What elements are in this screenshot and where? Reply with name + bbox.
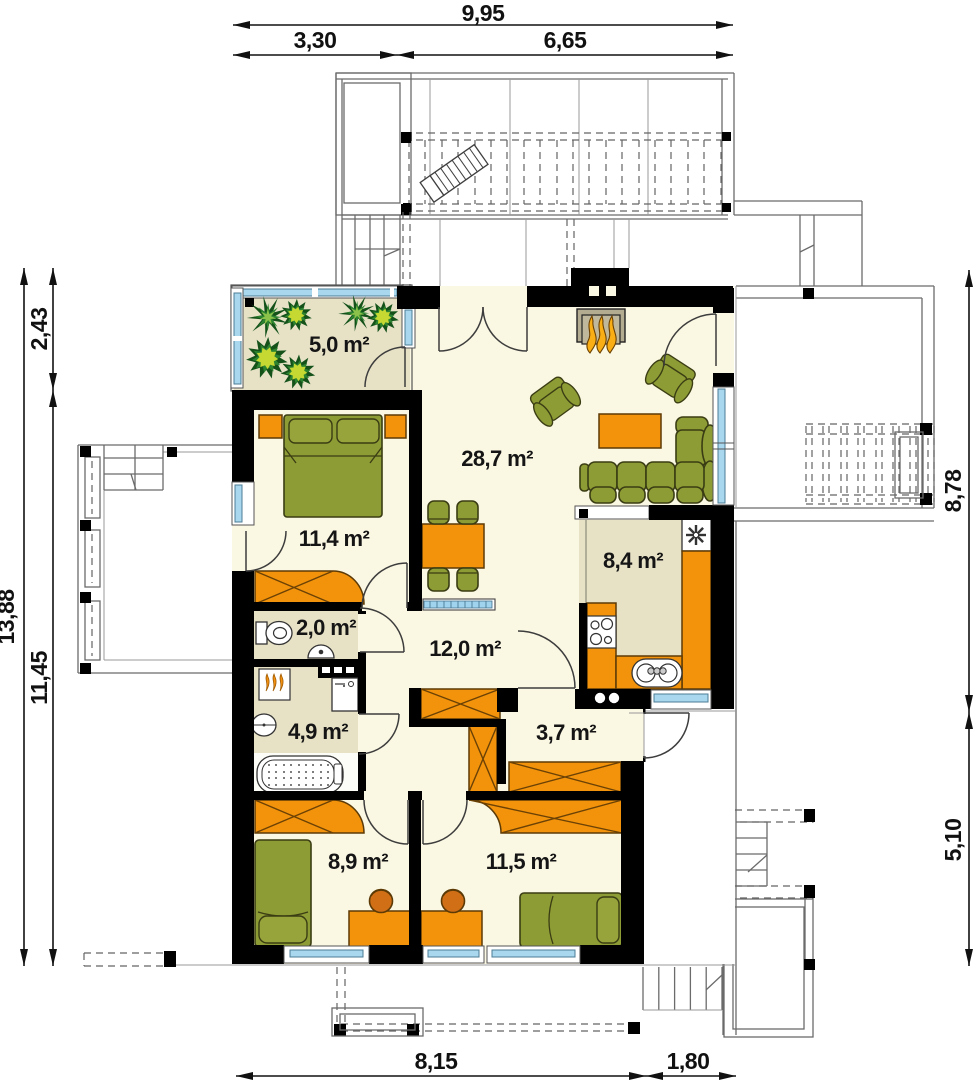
- svg-text:5,10: 5,10: [940, 819, 966, 862]
- svg-text:28,7 m²: 28,7 m²: [461, 446, 533, 471]
- svg-text:3,7 m²: 3,7 m²: [536, 720, 596, 745]
- svg-text:8,9 m²: 8,9 m²: [328, 849, 388, 874]
- svg-text:5,0 m²: 5,0 m²: [309, 332, 369, 357]
- svg-text:8,78: 8,78: [940, 469, 966, 512]
- svg-text:11,5 m²: 11,5 m²: [486, 849, 557, 874]
- svg-text:8,4 m²: 8,4 m²: [603, 548, 663, 573]
- svg-text:12,0 m²: 12,0 m²: [429, 636, 501, 661]
- svg-text:3,30: 3,30: [294, 27, 337, 53]
- svg-text:13,88: 13,88: [0, 589, 19, 645]
- svg-text:9,95: 9,95: [462, 0, 505, 26]
- svg-text:11,45: 11,45: [26, 650, 52, 704]
- svg-text:2,43: 2,43: [26, 308, 52, 351]
- svg-text:11,4 m²: 11,4 m²: [299, 526, 370, 551]
- svg-text:8,15: 8,15: [415, 1048, 458, 1074]
- svg-text:1,80: 1,80: [667, 1048, 710, 1074]
- svg-text:6,65: 6,65: [544, 27, 587, 53]
- svg-text:4,9 m²: 4,9 m²: [288, 719, 348, 744]
- svg-text:2,0 m²: 2,0 m²: [296, 615, 356, 640]
